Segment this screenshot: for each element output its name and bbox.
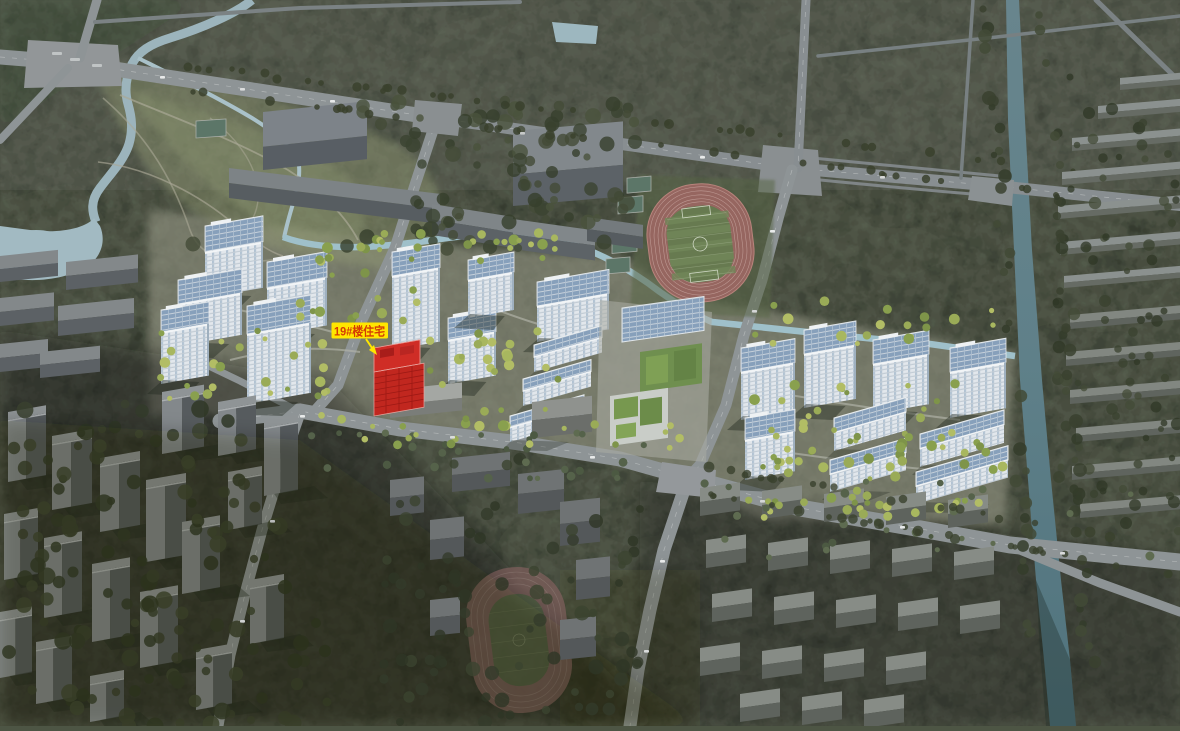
svg-text:19#楼住宅: 19#楼住宅 — [334, 324, 385, 339]
